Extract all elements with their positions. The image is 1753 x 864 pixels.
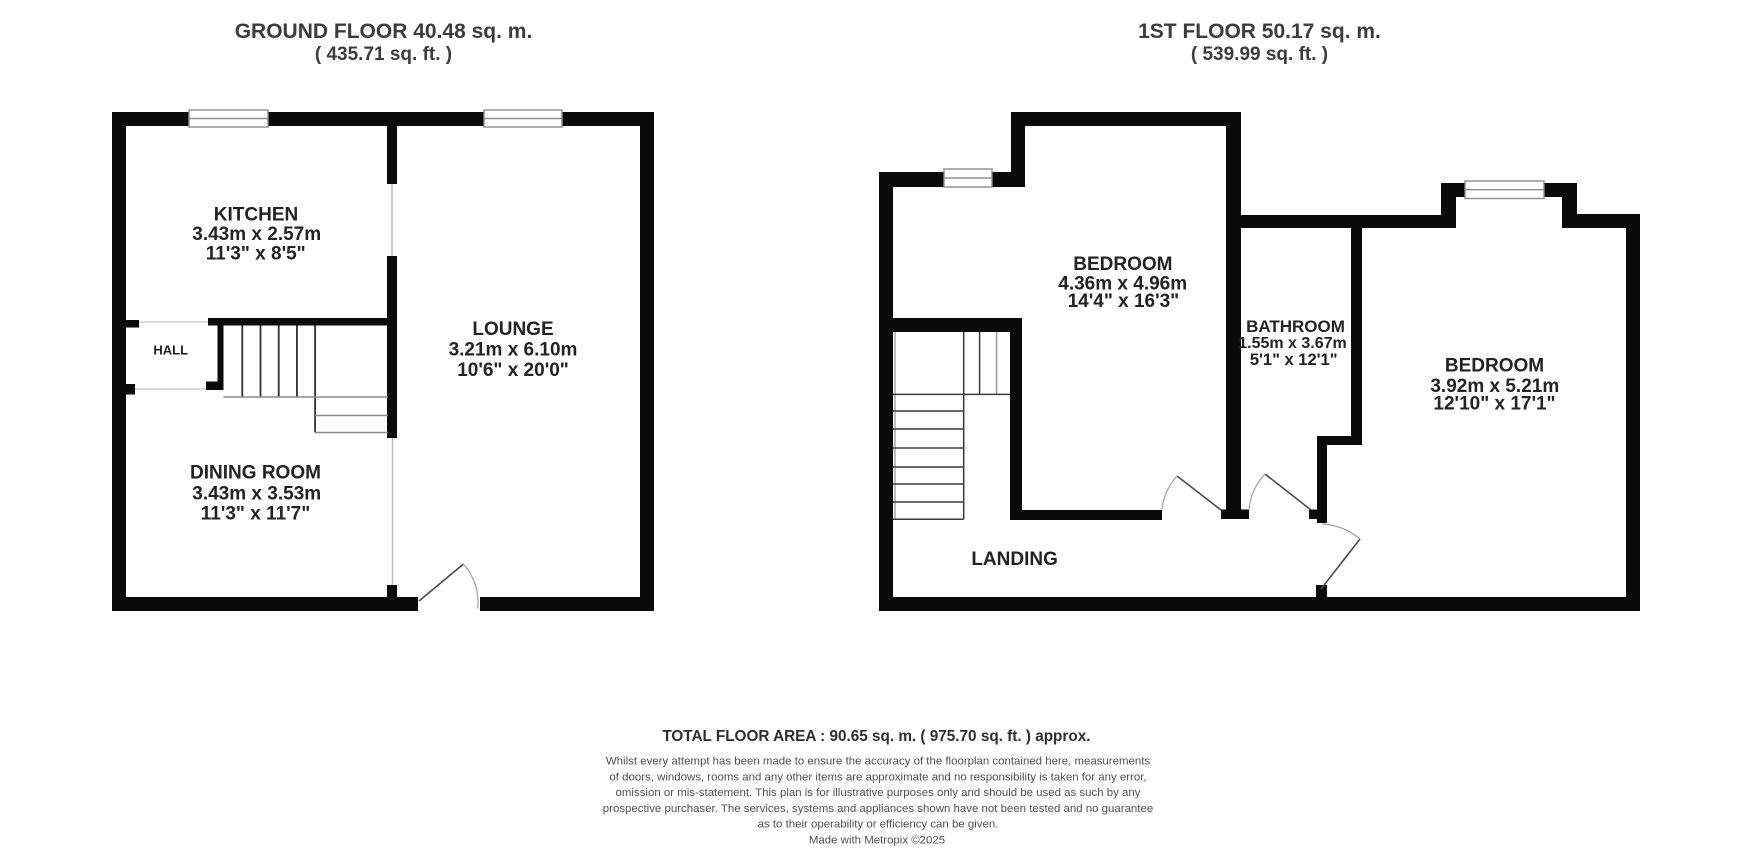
svg-text:KITCHEN: KITCHEN [214, 204, 298, 225]
svg-text:Whilst every attempt has been: Whilst every attempt has been made to en… [606, 756, 1150, 768]
svg-text:14'4" x 16'3": 14'4" x 16'3" [1068, 291, 1180, 312]
svg-text:3.21m x 6.10m: 3.21m x 6.10m [449, 339, 578, 360]
svg-text:BEDROOM: BEDROOM [1445, 356, 1544, 377]
svg-text:( 539.99 sq. ft. ): ( 539.99 sq. ft. ) [1191, 44, 1328, 65]
svg-text:LOUNGE: LOUNGE [472, 319, 553, 340]
svg-text:as to their operability or eff: as to their operability or efficiency ca… [758, 819, 999, 831]
svg-text:TOTAL FLOOR AREA : 90.65 sq. m: TOTAL FLOOR AREA : 90.65 sq. m. ( 975.70… [662, 728, 1090, 745]
svg-text:of doors, windows, rooms and a: of doors, windows, rooms and any other i… [609, 771, 1146, 783]
svg-text:GROUND FLOOR 40.48 sq. m.: GROUND FLOOR 40.48 sq. m. [235, 20, 533, 43]
svg-text:12'10" x 17'1": 12'10" x 17'1" [1433, 394, 1555, 415]
svg-text:11'3" x 8'5": 11'3" x 8'5" [206, 243, 306, 264]
svg-text:3.43m x 2.57m: 3.43m x 2.57m [192, 224, 321, 245]
svg-text:( 435.71 sq. ft. ): ( 435.71 sq. ft. ) [315, 44, 452, 65]
svg-text:Made with Metropix ©2025: Made with Metropix ©2025 [809, 835, 945, 847]
svg-text:3.43m x 3.53m: 3.43m x 3.53m [192, 484, 321, 505]
svg-text:1ST FLOOR 50.17 sq. m.: 1ST FLOOR 50.17 sq. m. [1138, 20, 1381, 43]
svg-text:HALL: HALL [153, 343, 188, 358]
svg-text:BEDROOM: BEDROOM [1073, 254, 1172, 275]
svg-text:BATHROOM: BATHROOM [1246, 317, 1345, 336]
svg-text:omission or mis-statement. Thi: omission or mis-statement. This plan is … [616, 787, 1141, 799]
svg-text:11'3" x 11'7": 11'3" x 11'7" [201, 504, 310, 525]
svg-text:LANDING: LANDING [971, 549, 1058, 570]
svg-text:10'6" x 20'0": 10'6" x 20'0" [457, 360, 569, 381]
svg-text:5'1" x 12'1": 5'1" x 12'1" [1250, 351, 1338, 369]
svg-text:1.55m x 3.67m: 1.55m x 3.67m [1238, 335, 1347, 352]
svg-text:DINING ROOM: DINING ROOM [190, 463, 321, 484]
svg-text:prospective purchaser. The ser: prospective purchaser. The services, sys… [603, 803, 1153, 815]
